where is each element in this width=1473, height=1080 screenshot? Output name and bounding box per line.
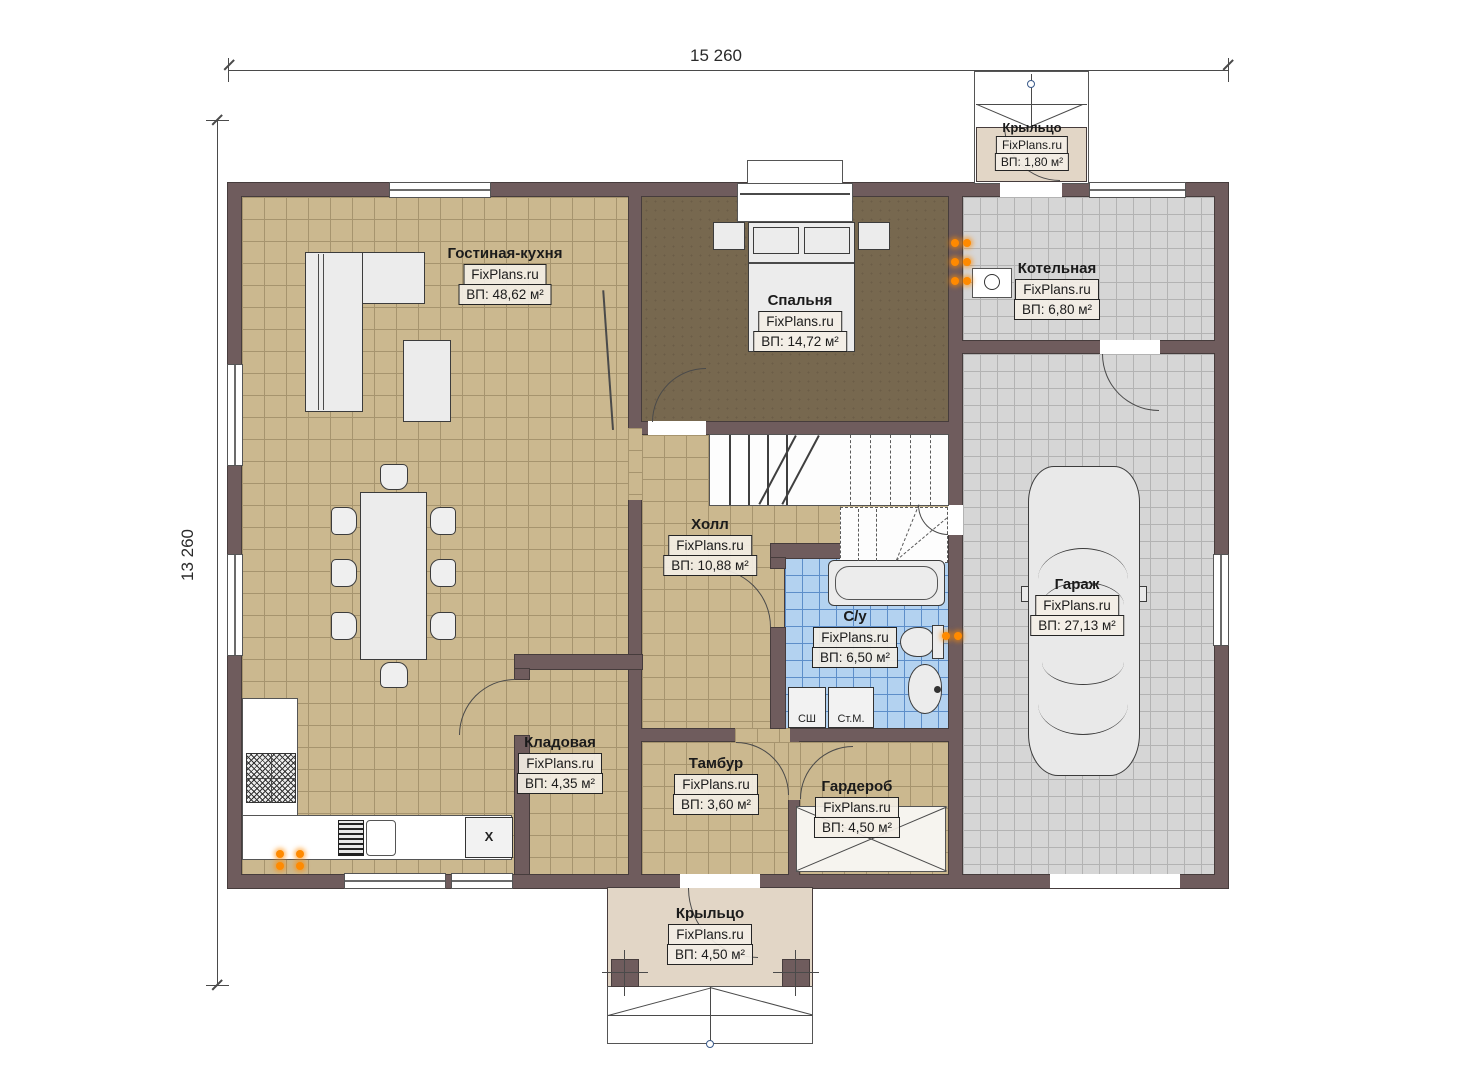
radiator: [296, 850, 304, 870]
porch-step-line: [608, 1015, 812, 1016]
room-label-boiler: Котельная FixPlans.ru ВП: 6,80 м²: [1014, 260, 1100, 320]
watermark: FixPlans.ru: [668, 924, 752, 945]
stair-tread-dashed: [890, 435, 891, 505]
room-label-wardrobe: Гардероб FixPlans.ru ВП: 4,50 м²: [814, 778, 900, 838]
pillow-right: [804, 227, 850, 254]
chair: [380, 464, 408, 490]
dryer-cabinet: СШ: [788, 687, 826, 728]
washing-machine: Ст.М.: [828, 687, 874, 728]
room-label-hall: Холл FixPlans.ru ВП: 10,88 м²: [663, 516, 757, 576]
chair: [380, 662, 408, 688]
room-area: ВП: 10,88 м²: [663, 555, 757, 576]
watermark: FixPlans.ru: [674, 774, 758, 795]
chair: [331, 559, 357, 587]
nightstand-left: [713, 222, 745, 250]
radiator: [951, 258, 971, 266]
room-label-bathroom: С/у FixPlans.ru ВП: 6,50 м²: [812, 608, 898, 668]
porch-column-right: [783, 960, 809, 986]
car-mirror-right: [1139, 586, 1147, 602]
chair: [331, 507, 357, 535]
room-area: ВП: 4,50 м²: [814, 817, 900, 838]
room-name: Гардероб: [822, 778, 893, 795]
room-area: ВП: 6,80 м²: [1014, 299, 1100, 320]
chair: [331, 612, 357, 640]
window-bedroom-sill: [747, 160, 843, 184]
dimension-height-label: 13 260: [178, 529, 198, 581]
room-name: Крыльцо: [676, 905, 744, 922]
porch-column-left: [612, 960, 638, 986]
window-bedroom-niche: [737, 183, 853, 222]
window-living-top: [390, 183, 490, 197]
storage-wall-top: [515, 655, 642, 669]
stair-tread: [729, 435, 731, 505]
stair-tread-dashed: [910, 435, 911, 505]
watermark: FixPlans.ru: [758, 311, 842, 332]
room-name: Гостиная-кухня: [448, 245, 563, 262]
room-name: Котельная: [1018, 260, 1097, 277]
porch-column-tick-right-v: [795, 950, 796, 996]
kitchen-sink-drainer: [338, 820, 364, 856]
door-gap-boiler-garage: [1100, 340, 1160, 354]
door-gap-bedroom: [648, 421, 706, 435]
room-area: ВП: 4,50 м²: [667, 944, 753, 965]
stair-tread-dashed: [850, 435, 851, 505]
toilet-bowl: [900, 627, 934, 657]
watermark: FixPlans.ru: [518, 753, 602, 774]
dishwasher-mark: X: [485, 829, 494, 844]
stairs-upper-flight: [710, 435, 948, 505]
porch-step-node: [706, 1040, 714, 1048]
blanket-line: [749, 262, 854, 264]
dimension-width-label: 15 260: [690, 46, 742, 66]
porch-column-tick-left-v: [624, 950, 625, 996]
radiator: [942, 632, 962, 640]
kitchen-sink-basin: [366, 820, 396, 856]
door-gap-living-hall: [628, 428, 642, 500]
toilet-tank: [932, 625, 944, 659]
room-name: Крыльцо: [1002, 120, 1061, 135]
watermark: FixPlans.ru: [1015, 279, 1099, 300]
window-living-left-1: [228, 365, 242, 465]
room-label-storage: Кладовая FixPlans.ru ВП: 4,35 м²: [517, 734, 603, 794]
room-area: ВП: 14,72 м²: [753, 331, 847, 352]
dimension-tick-top-left: [224, 59, 235, 70]
room-name: Тамбур: [689, 755, 743, 772]
storage-wall-left-upper: [515, 669, 529, 679]
bathroom-sink-tap: [934, 686, 941, 693]
stair-tread-dashed: [870, 435, 871, 505]
pillow-left: [753, 227, 799, 254]
dimension-ext-top-right: [1228, 58, 1229, 82]
sofa-back-line-2: [323, 254, 324, 410]
room-label-garage: Гараж FixPlans.ru ВП: 27,13 м²: [1030, 576, 1124, 636]
dimension-line-left: [217, 120, 218, 985]
radiator: [951, 277, 971, 285]
car-mirror-left: [1021, 586, 1029, 602]
window-living-left-2: [228, 555, 242, 655]
garage-gate-opening: [1050, 874, 1180, 888]
watermark: FixPlans.ru: [463, 264, 547, 285]
boiler-unit-circle: [984, 274, 1000, 290]
dining-table: [360, 492, 427, 660]
door-gap-hall-garage: [948, 505, 963, 535]
room-name: Кладовая: [524, 734, 596, 751]
porch-column-tick-right-h: [773, 972, 819, 973]
stair-tread-dashed: [876, 509, 877, 561]
floor-plan-canvas: 15 260 13 260: [0, 0, 1473, 1080]
stair-tread-dashed: [858, 509, 859, 561]
watermark: FixPlans.ru: [813, 627, 897, 648]
dimension-ext-left-top: [206, 120, 229, 121]
coffee-table: [403, 340, 451, 422]
watermark: FixPlans.ru: [668, 535, 752, 556]
washer-label: Ст.М.: [837, 713, 864, 725]
door-gap-porch-top: [1000, 183, 1062, 197]
porch-column-tick-left-h: [602, 972, 648, 973]
watermark: FixPlans.ru: [1035, 595, 1119, 616]
room-area: ВП: 6,50 м²: [812, 647, 898, 668]
watermark: FixPlans.ru: [996, 136, 1068, 154]
stair-tread: [767, 435, 769, 505]
room-area: ВП: 48,62 м²: [458, 284, 552, 305]
door-gap-vestibule-top: [735, 728, 790, 742]
room-name: Холл: [691, 516, 729, 533]
room-area: ВП: 3,60 м²: [673, 794, 759, 815]
window-kitchen-bottom-2: [452, 874, 512, 888]
window-bedroom-glass: [740, 193, 850, 195]
dimension-line-top: [228, 70, 1228, 71]
room-name: С/у: [843, 608, 866, 625]
room-area: ВП: 1,80 м²: [995, 153, 1069, 171]
stair-tread-dashed: [930, 435, 931, 505]
window-boiler-top: [1090, 183, 1185, 197]
room-label-living-kitchen: Гостиная-кухня FixPlans.ru ВП: 48,62 м²: [448, 245, 563, 305]
stair-tread: [748, 435, 750, 505]
room-name: Спальня: [768, 292, 833, 309]
window-garage-right: [1214, 555, 1228, 645]
chair: [430, 612, 456, 640]
bathtub-inner: [835, 566, 938, 600]
sofa-back-line: [318, 254, 319, 410]
bathroom-wall-left-lower: [771, 628, 785, 728]
radiator: [951, 239, 971, 247]
window-kitchen-bottom: [345, 874, 445, 888]
nightstand-right: [858, 222, 890, 250]
radiator: [276, 850, 284, 870]
watermark: FixPlans.ru: [815, 797, 899, 818]
room-name: Гараж: [1055, 576, 1100, 593]
chair: [430, 559, 456, 587]
room-label-vestibule: Тамбур FixPlans.ru ВП: 3,60 м²: [673, 755, 759, 815]
room-label-bedroom: Спальня FixPlans.ru ВП: 14,72 м²: [753, 292, 847, 352]
dimension-ext-top-left: [228, 58, 229, 82]
door-gap-entrance: [680, 874, 760, 888]
room-label-porch-top: Крыльцо FixPlans.ru ВП: 1,80 м²: [995, 120, 1069, 171]
dishwasher: X: [465, 817, 513, 858]
stove-divider-h: [246, 778, 296, 779]
dimension-ext-left-bottom: [206, 985, 229, 986]
chair: [430, 507, 456, 535]
porch-top-roof-node: [1027, 80, 1035, 88]
door-gap-wardrobe: [788, 742, 800, 800]
bathroom-wall-left-upper: [771, 558, 785, 568]
dryer-label: СШ: [798, 713, 816, 725]
room-area: ВП: 27,13 м²: [1030, 615, 1124, 636]
sofa-vertical: [305, 252, 363, 412]
room-label-porch-bottom: Крыльцо FixPlans.ru ВП: 4,50 м²: [667, 905, 753, 965]
room-area: ВП: 4,35 м²: [517, 773, 603, 794]
